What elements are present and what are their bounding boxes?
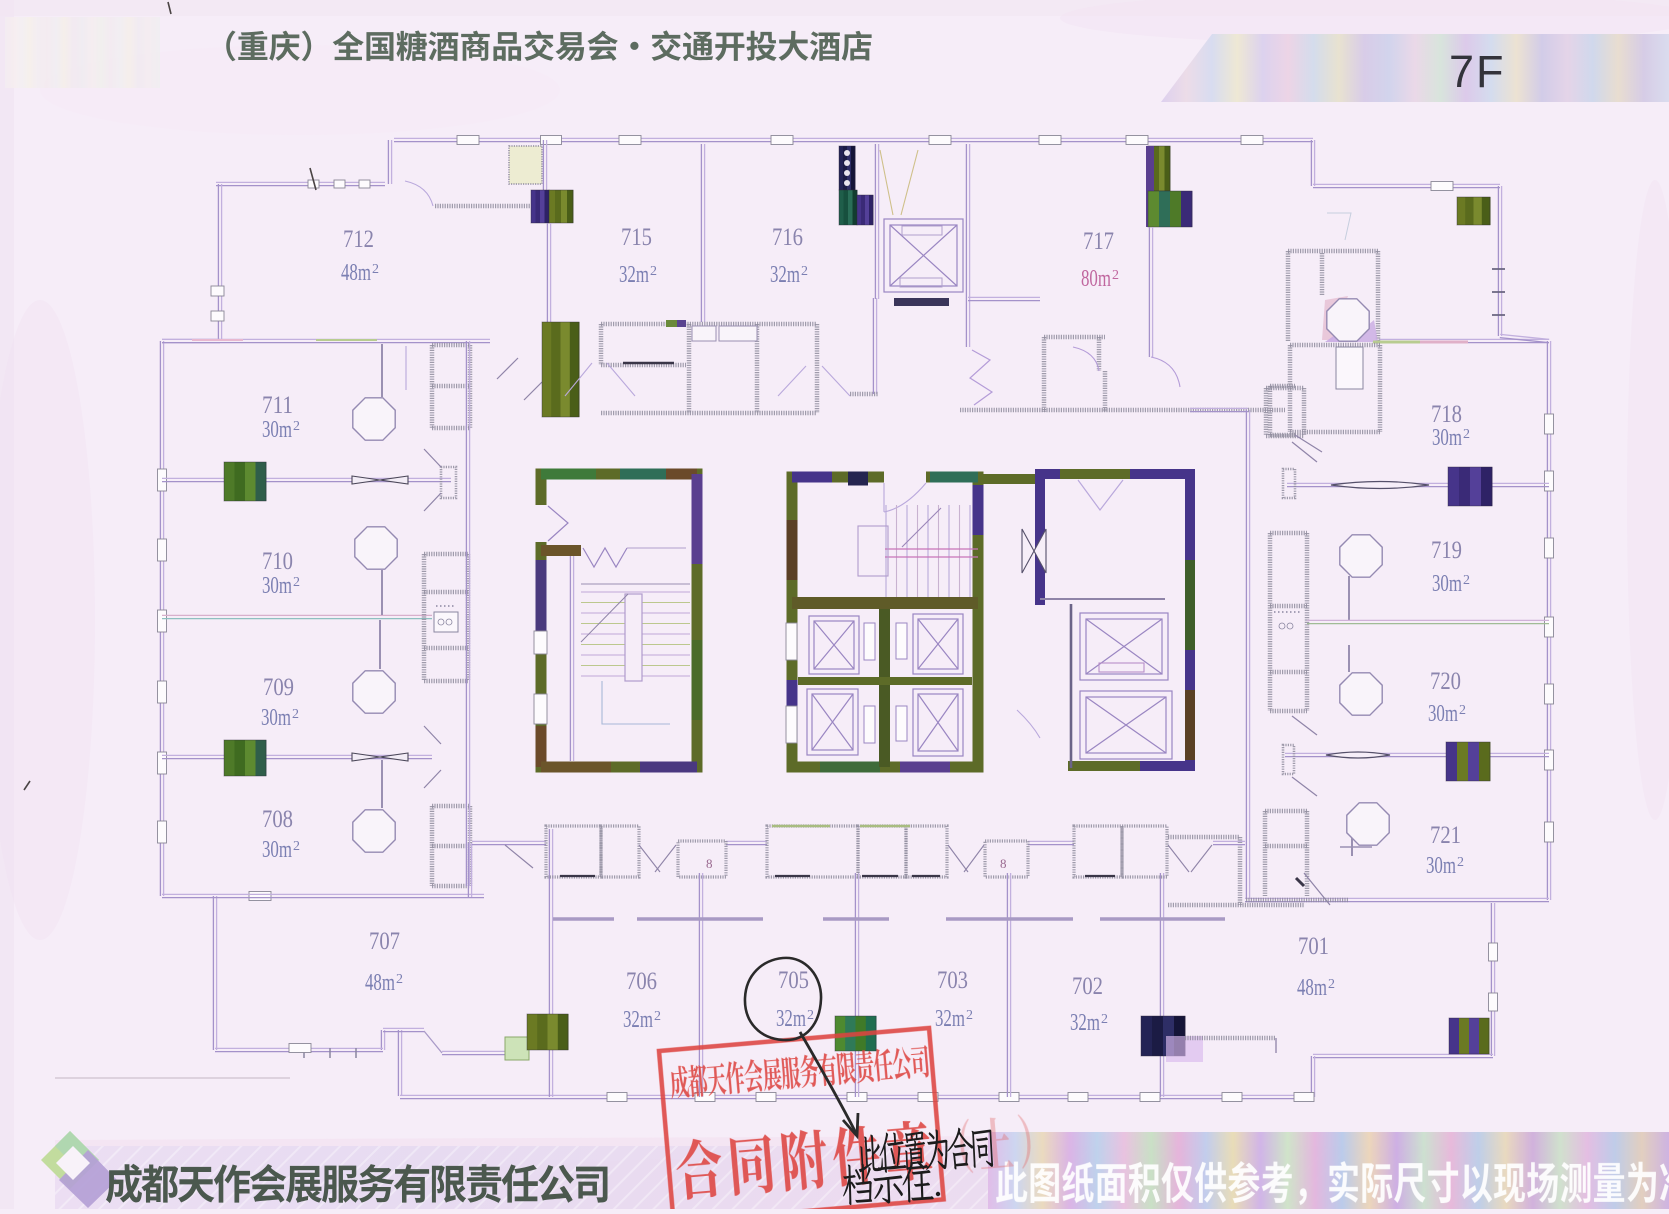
svg-text:2: 2: [1112, 268, 1119, 283]
svg-text:48m: 48m: [341, 260, 371, 286]
svg-text:8: 8: [706, 856, 713, 871]
svg-text:2: 2: [396, 972, 403, 987]
svg-text:2: 2: [293, 419, 300, 434]
svg-text:711: 711: [262, 392, 293, 419]
svg-text:720: 720: [1430, 668, 1461, 695]
svg-text:2: 2: [292, 707, 299, 722]
svg-text:32m: 32m: [619, 262, 649, 288]
svg-text:717: 717: [1083, 228, 1114, 255]
svg-text:2: 2: [1457, 855, 1464, 870]
svg-text:2: 2: [293, 575, 300, 590]
svg-text:30m: 30m: [262, 417, 292, 443]
svg-text:2: 2: [650, 264, 657, 279]
svg-text:32m: 32m: [623, 1007, 653, 1033]
svg-text:2: 2: [1463, 427, 1470, 442]
svg-text:32m: 32m: [770, 262, 800, 288]
svg-text:30m: 30m: [261, 705, 291, 731]
svg-text:719: 719: [1431, 537, 1462, 564]
svg-text:30m: 30m: [1432, 571, 1462, 597]
svg-text:32m: 32m: [935, 1006, 965, 1032]
svg-text:2: 2: [1101, 1012, 1108, 1027]
svg-text:716: 716: [772, 224, 803, 251]
svg-text:30m: 30m: [262, 837, 292, 863]
svg-text:710: 710: [262, 548, 293, 575]
svg-text:715: 715: [621, 224, 652, 251]
svg-text:2: 2: [966, 1008, 973, 1023]
svg-text:2: 2: [372, 262, 379, 277]
svg-text:48m: 48m: [365, 970, 395, 996]
svg-text:7F: 7F: [1449, 46, 1506, 97]
svg-text:701: 701: [1298, 933, 1329, 960]
svg-text:2: 2: [1328, 977, 1335, 992]
svg-text:2: 2: [1463, 573, 1470, 588]
svg-text:2: 2: [654, 1009, 661, 1024]
svg-text:712: 712: [343, 226, 374, 253]
svg-text:702: 702: [1072, 973, 1103, 1000]
svg-text:705: 705: [778, 967, 809, 994]
svg-text:80m: 80m: [1081, 266, 1111, 292]
svg-text:707: 707: [369, 928, 400, 955]
svg-text:32m: 32m: [776, 1006, 806, 1032]
svg-text:703: 703: [937, 967, 968, 994]
svg-text:30m: 30m: [1426, 853, 1456, 879]
svg-text:721: 721: [1430, 822, 1461, 849]
svg-text:2: 2: [807, 1008, 814, 1023]
svg-text:2: 2: [801, 264, 808, 279]
svg-text:718: 718: [1431, 401, 1462, 428]
svg-text:709: 709: [263, 674, 294, 701]
svg-text:48m: 48m: [1297, 975, 1327, 1001]
svg-text:706: 706: [626, 968, 657, 995]
svg-text:2: 2: [293, 839, 300, 854]
svg-text:32m: 32m: [1070, 1010, 1100, 1036]
svg-text:8: 8: [1000, 856, 1007, 871]
svg-text:30m: 30m: [262, 573, 292, 599]
svg-text:30m: 30m: [1428, 701, 1458, 727]
svg-text:708: 708: [262, 806, 293, 833]
svg-text:30m: 30m: [1432, 425, 1462, 451]
svg-text:2: 2: [1459, 703, 1466, 718]
